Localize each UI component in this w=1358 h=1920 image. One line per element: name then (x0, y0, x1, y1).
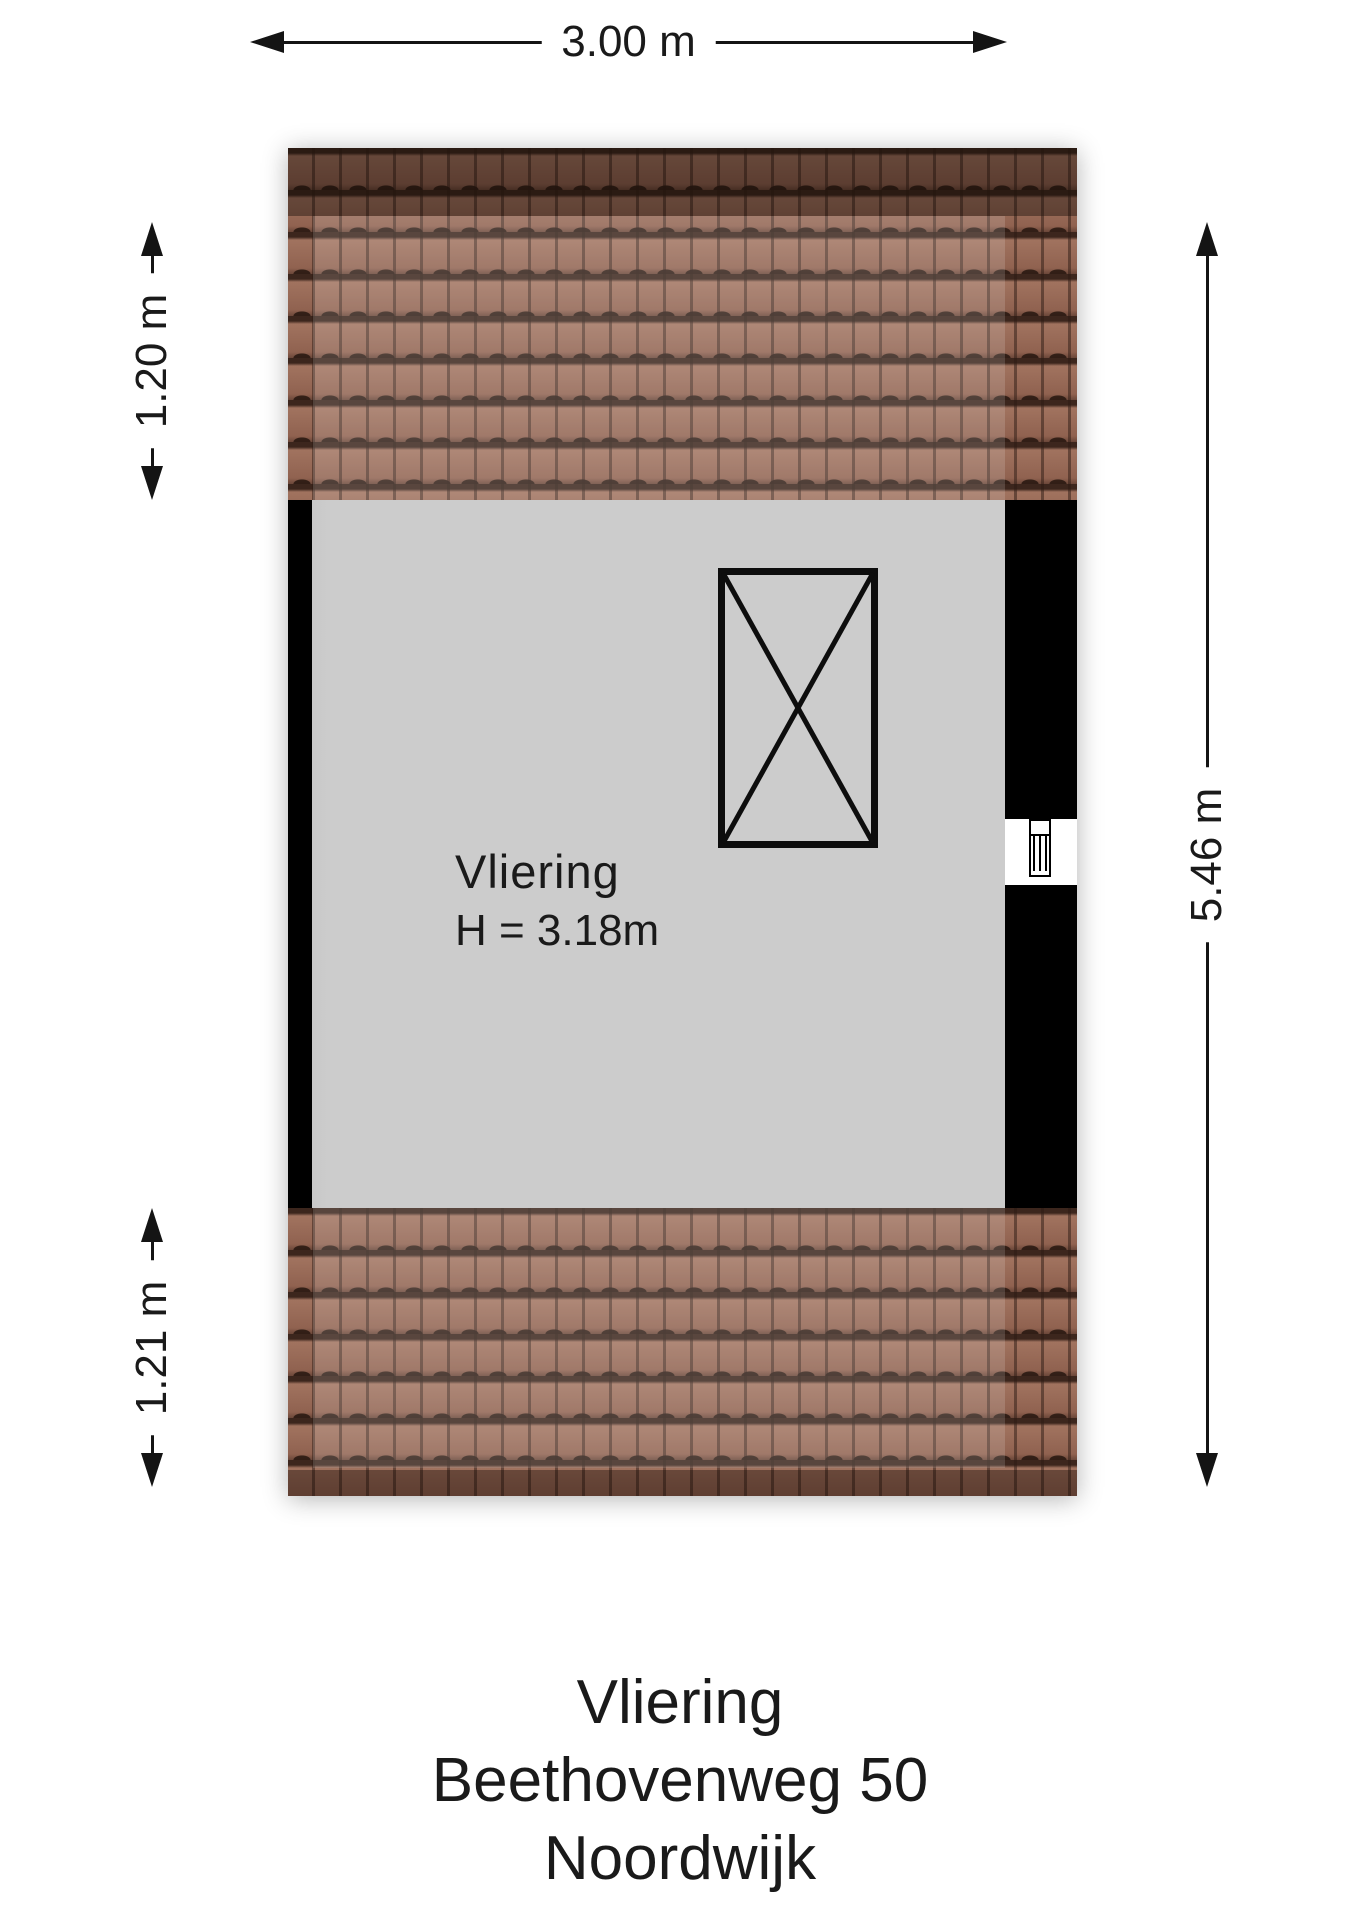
room-name-label: Vliering (455, 848, 659, 895)
arrowhead-down-icon (1196, 1453, 1218, 1487)
arrowhead-left-icon (250, 31, 284, 53)
caption-room-line: Vliering (432, 1664, 928, 1742)
plan-caption: Vliering Beethovenweg 50 Noordwijk (432, 1664, 928, 1898)
room-ceiling-height-label: H = 3.18m (455, 909, 659, 953)
roof-highlight-overlay (313, 216, 1005, 500)
dimension-roof-left-bottom-label: 1.21 m (125, 1260, 179, 1435)
roof-section-top (288, 148, 1077, 500)
arrowhead-down-icon (141, 1453, 163, 1487)
dimension-roof-left-top: 1.20 m (136, 222, 168, 500)
dimension-roof-left-bottom: 1.21 m (136, 1208, 168, 1487)
roof-eave-band (288, 1470, 1077, 1496)
dimension-height-right: 5.46 m (1191, 222, 1223, 1487)
roof-ridge-band (288, 148, 1077, 216)
arrowhead-up-icon (1196, 222, 1218, 256)
arrowhead-down-icon (141, 466, 163, 500)
caption-city-line: Noordwijk (432, 1820, 928, 1898)
arrowhead-up-icon (141, 222, 163, 256)
window-symbol (1005, 816, 1077, 888)
dimension-roof-left-top-label: 1.20 m (125, 274, 179, 449)
floorplan: Vliering H = 3.18m (288, 148, 1077, 1496)
dimension-width-top-label: 3.00 m (541, 15, 716, 69)
crossed-box-icon (718, 568, 878, 848)
attic-floor-area (288, 500, 1077, 1208)
dimension-width-top: 3.00 m (250, 26, 1007, 58)
wall-left (288, 500, 312, 1208)
caption-address-line: Beethovenweg 50 (432, 1742, 928, 1820)
dimension-height-right-label: 5.46 m (1180, 767, 1234, 942)
roof-section-bottom (288, 1208, 1077, 1496)
room-label: Vliering H = 3.18m (455, 848, 659, 953)
stair-opening-symbol (718, 568, 878, 848)
roof-highlight-overlay (313, 1208, 1005, 1468)
arrowhead-up-icon (141, 1208, 163, 1242)
arrowhead-right-icon (973, 31, 1007, 53)
window-frame-icon (1029, 819, 1051, 877)
